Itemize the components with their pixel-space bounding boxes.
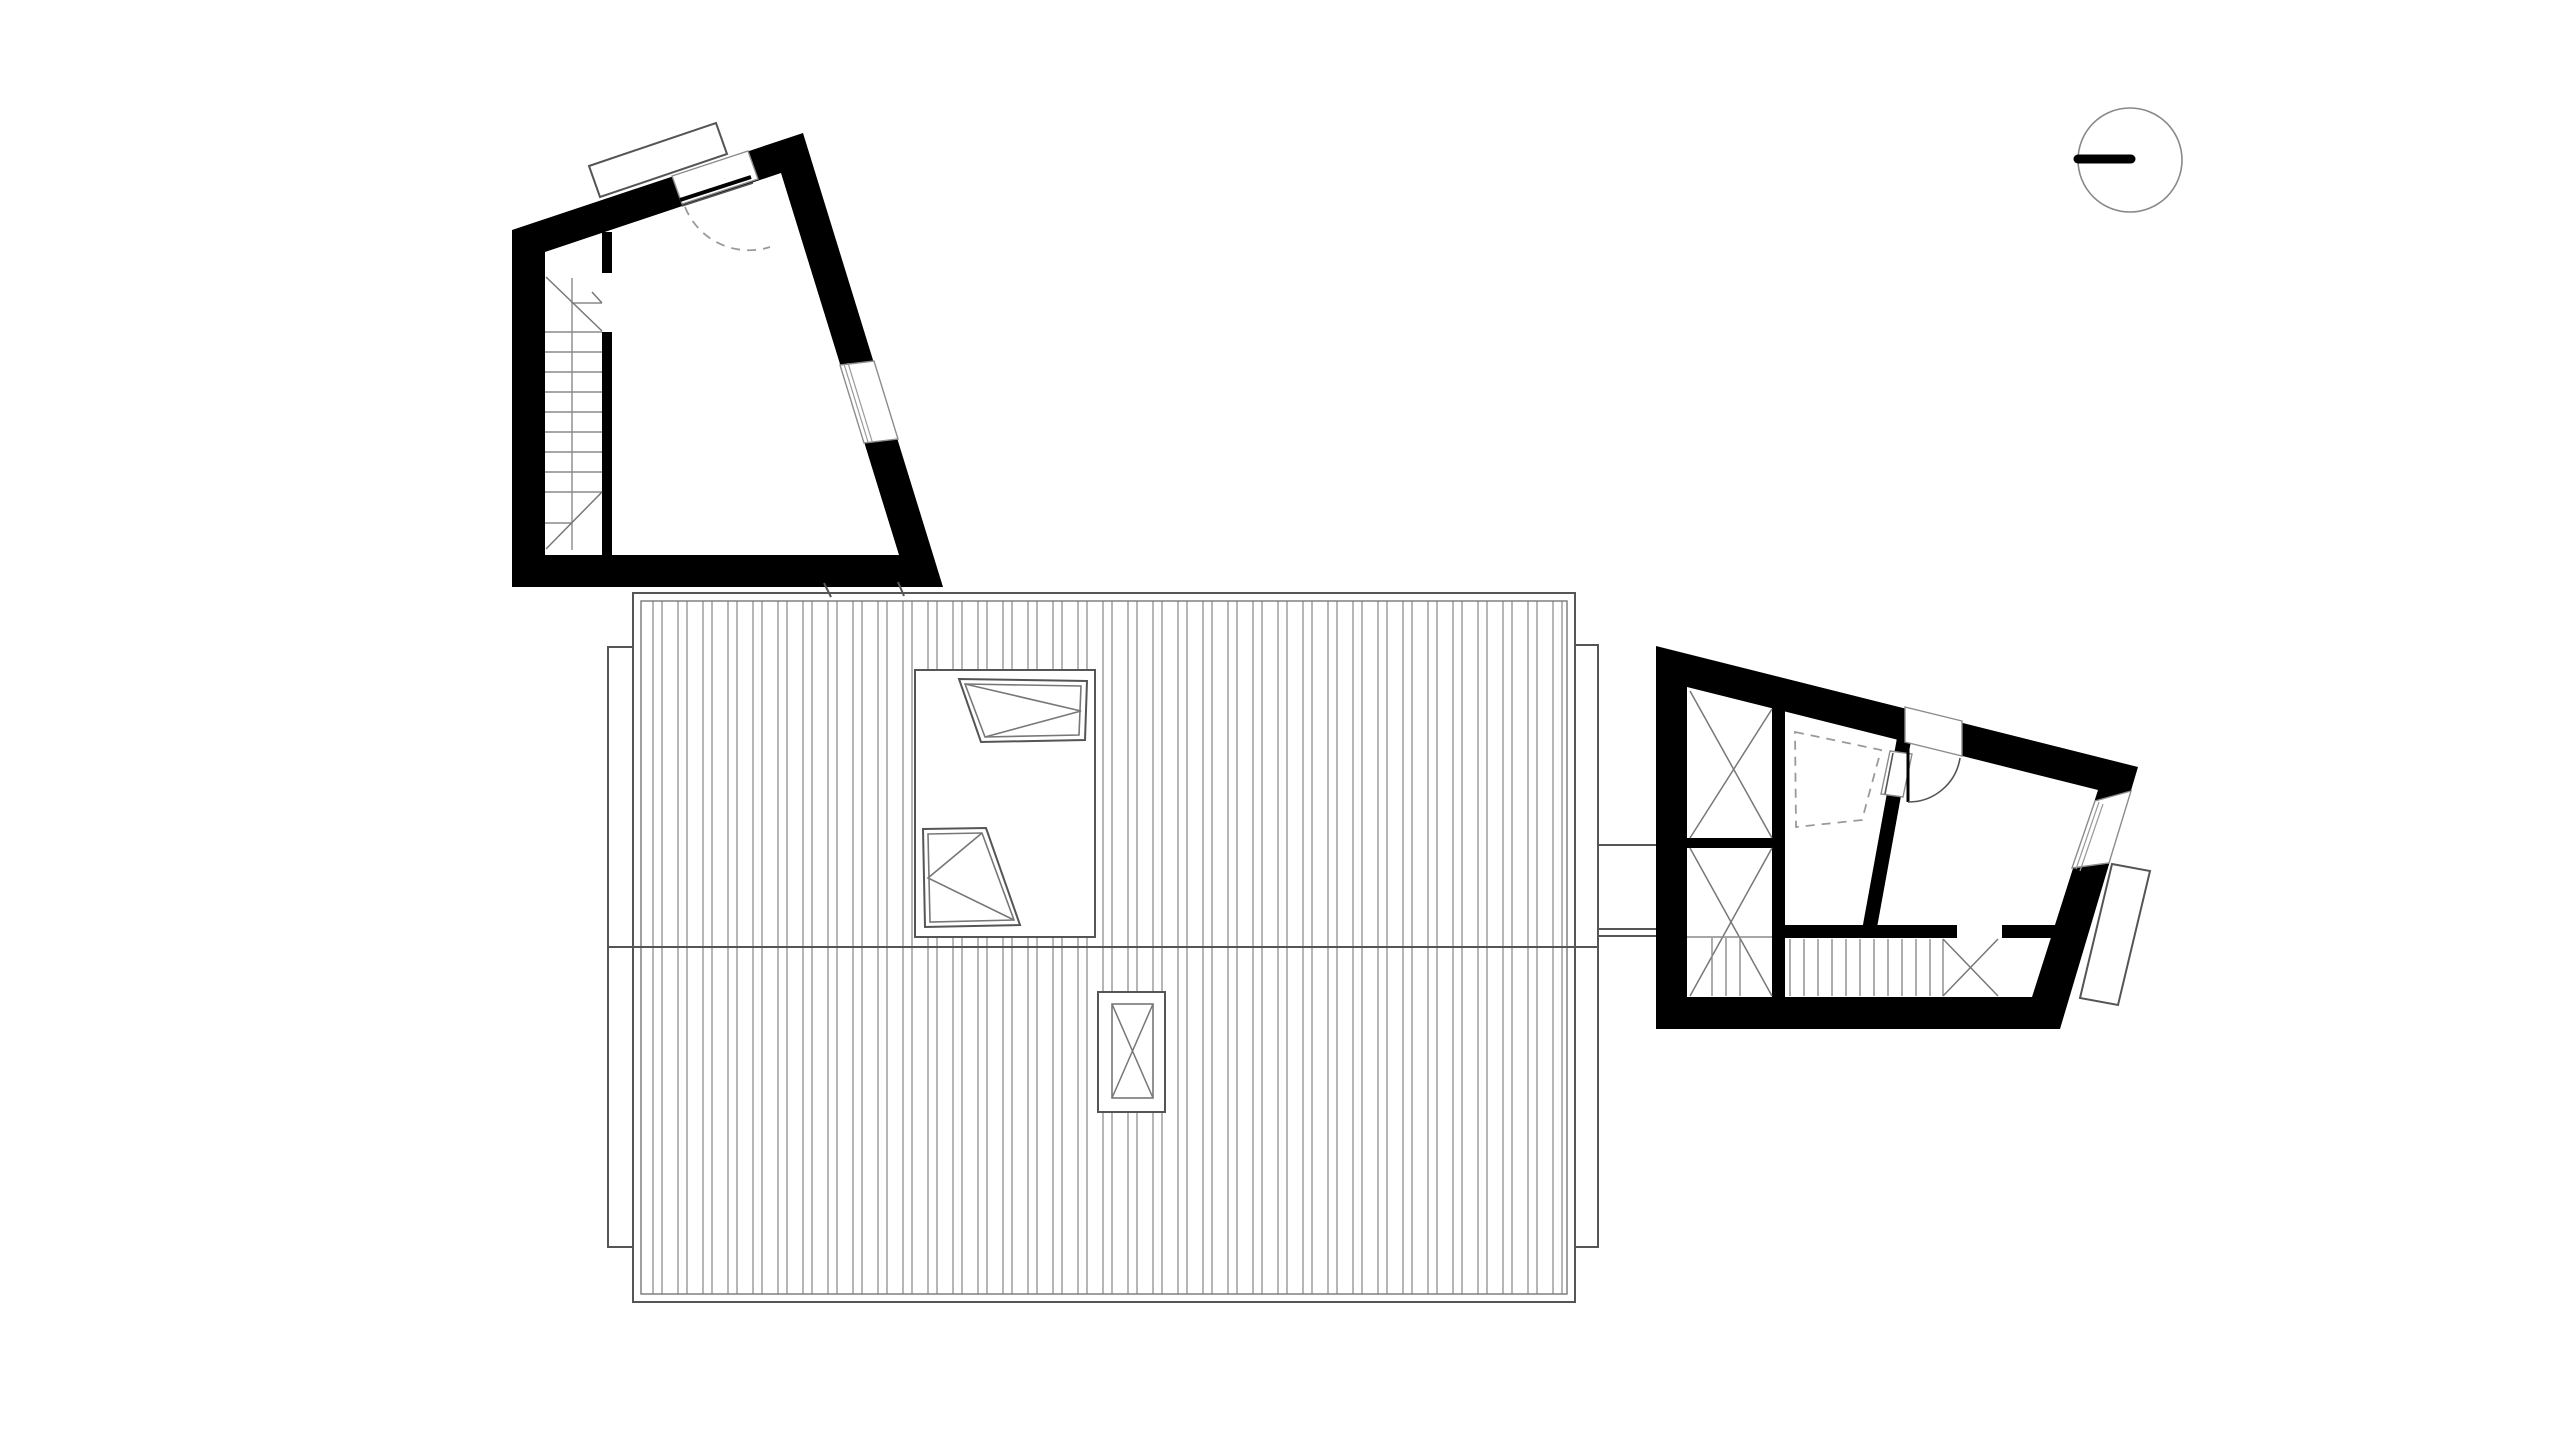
main-roof [608,582,1598,1302]
wardrobe-divider [1687,838,1772,848]
floor-plan-sheet [0,0,2560,1440]
roof-annex-connector [1598,845,1656,936]
stair-wall-right [2002,925,2055,938]
north-indicator [2078,108,2182,212]
floor-plan-canvas [0,0,2560,1440]
roof-hatch-small [1098,992,1165,1112]
wardrobe-wall [1772,707,1785,997]
right-annex [1656,646,2150,1029]
left-annex [512,123,943,587]
